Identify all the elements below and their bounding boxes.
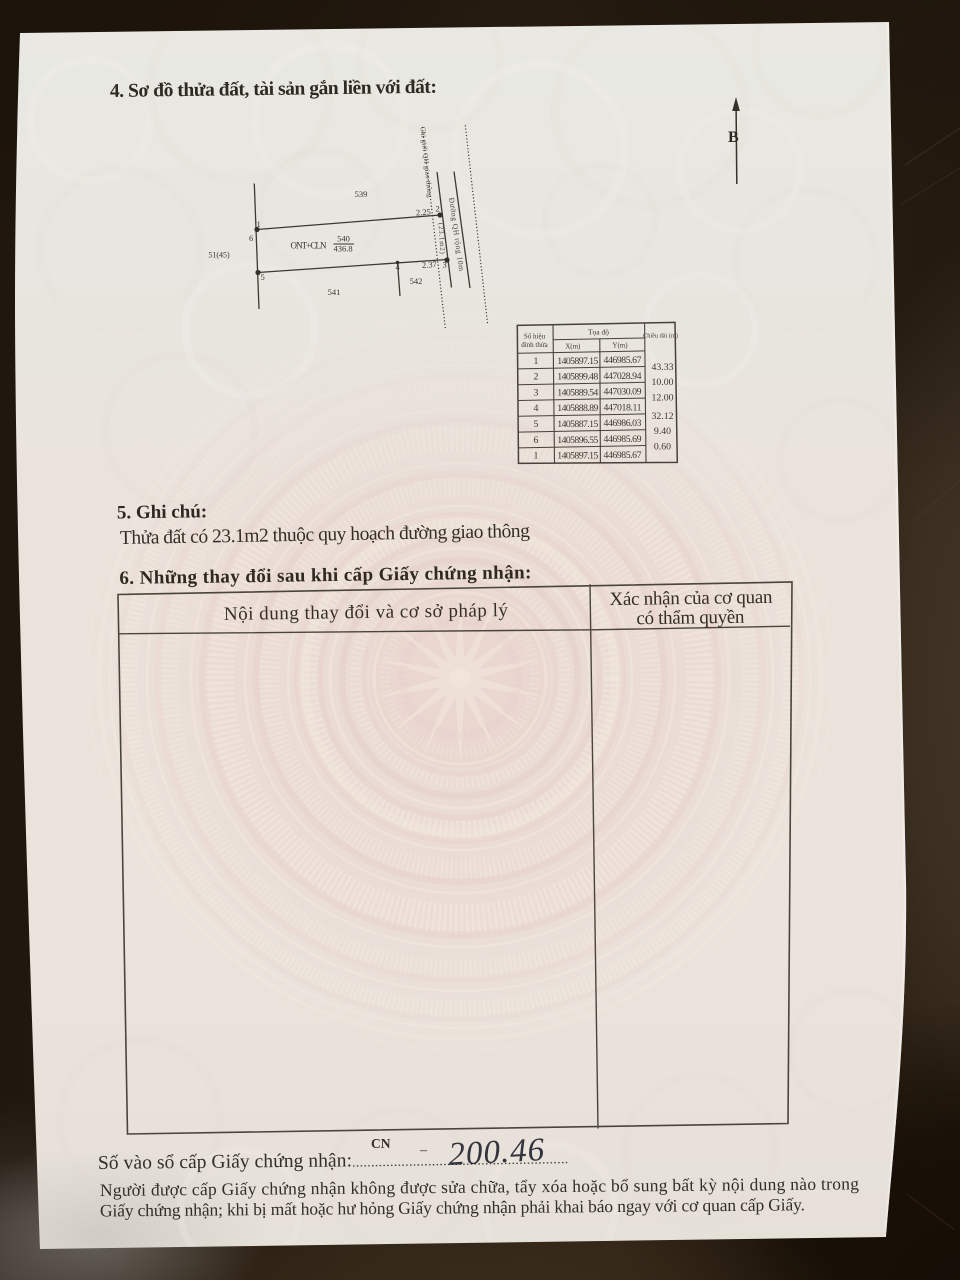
svg-text:5: 5 <box>534 419 539 430</box>
svg-text:446985.67: 446985.67 <box>604 450 642 461</box>
svg-text:200.46: 200.46 <box>448 1132 547 1173</box>
svg-text:436.8: 436.8 <box>333 244 352 254</box>
svg-text:2.37: 2.37 <box>422 259 438 270</box>
svg-text:có thẩm quyền: có thẩm quyền <box>636 607 745 630</box>
svg-text:1405896.55: 1405896.55 <box>557 435 598 446</box>
svg-text:Số vào sổ cấp Giấy chứng nhận:: Số vào sổ cấp Giấy chứng nhận: <box>98 1150 352 1174</box>
svg-text:51(45): 51(45) <box>208 251 230 260</box>
svg-text:2: 2 <box>534 372 539 383</box>
svg-text:–: – <box>419 1143 428 1158</box>
svg-text:5: 5 <box>261 272 265 282</box>
svg-text:Chiều dài (m): Chiều dài (m) <box>643 333 678 340</box>
svg-text:Nội dung thay đổi và cơ sở phá: Nội dung thay đổi và cơ sở pháp lý <box>224 600 509 625</box>
svg-text:1: 1 <box>534 356 539 367</box>
svg-text:1405887.15: 1405887.15 <box>557 419 598 430</box>
svg-text:43.33: 43.33 <box>651 362 673 373</box>
svg-text:539: 539 <box>355 189 368 199</box>
svg-text:đỉnh thửa: đỉnh thửa <box>521 341 548 349</box>
svg-text:Số hiệu: Số hiệu <box>524 333 546 341</box>
svg-text:446985.67: 446985.67 <box>604 355 642 366</box>
svg-text:Tọa độ: Tọa độ <box>588 328 609 337</box>
svg-text:B: B <box>728 129 739 146</box>
svg-text:1405899.48: 1405899.48 <box>557 372 598 383</box>
svg-text:9.40: 9.40 <box>654 426 671 437</box>
svg-text:3: 3 <box>443 260 447 270</box>
svg-text:CN: CN <box>371 1136 391 1151</box>
svg-text:32.12: 32.12 <box>651 411 673 422</box>
svg-text:3: 3 <box>534 387 539 398</box>
svg-text:10.00: 10.00 <box>651 377 673 388</box>
svg-text:540: 540 <box>337 234 350 244</box>
svg-text:446986.03: 446986.03 <box>604 418 642 429</box>
svg-text:6: 6 <box>534 435 539 446</box>
svg-text:5. Ghi chú:: 5. Ghi chú: <box>117 501 208 523</box>
svg-text:X(m): X(m) <box>565 343 581 351</box>
svg-text:12.00: 12.00 <box>651 393 673 404</box>
svg-text:2: 2 <box>436 204 440 214</box>
svg-text:1405897.15: 1405897.15 <box>557 451 598 462</box>
svg-text:2.25: 2.25 <box>416 207 432 218</box>
svg-text:446985.69: 446985.69 <box>604 434 642 445</box>
svg-text:541: 541 <box>328 287 341 297</box>
svg-text:1: 1 <box>534 451 539 462</box>
svg-text:4: 4 <box>534 403 539 414</box>
svg-text:1405889.54: 1405889.54 <box>557 387 598 398</box>
svg-text:447028.94: 447028.94 <box>604 371 642 382</box>
svg-text:542: 542 <box>410 276 423 286</box>
svg-text:0.60: 0.60 <box>654 442 671 453</box>
svg-text:447018.11: 447018.11 <box>604 402 642 413</box>
svg-text:1: 1 <box>257 219 261 229</box>
svg-text:4. Sơ đồ thửa đất, tài sản gắn: 4. Sơ đồ thửa đất, tài sản gắn liền với … <box>110 77 437 102</box>
svg-text:Y(m): Y(m) <box>612 342 628 350</box>
svg-text:447030.09: 447030.09 <box>604 387 642 398</box>
svg-text:1405888.89: 1405888.89 <box>557 403 598 414</box>
svg-text:ONT+CLN: ONT+CLN <box>291 241 328 251</box>
svg-text:1405897.15: 1405897.15 <box>557 356 598 367</box>
svg-text:6: 6 <box>249 233 253 243</box>
